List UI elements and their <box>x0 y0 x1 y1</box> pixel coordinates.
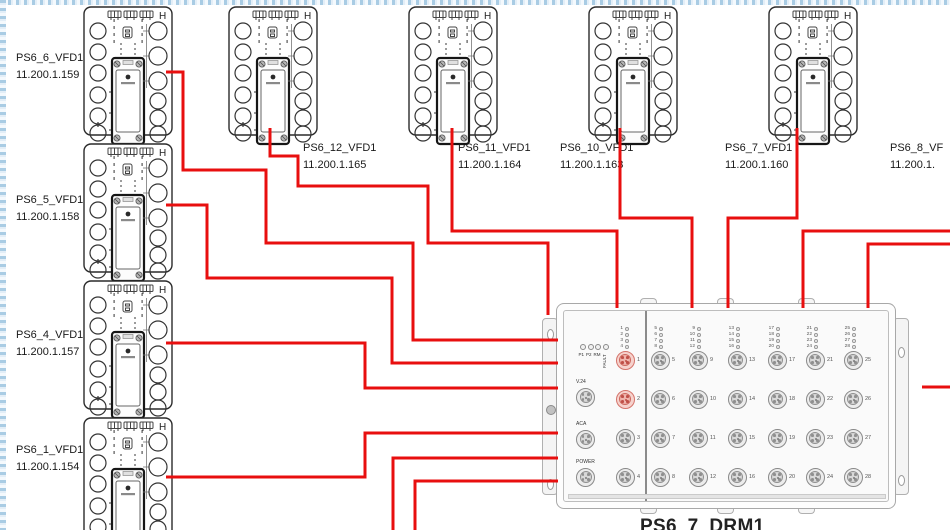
device-label-ps6-1: PS6_1_VFD111.200.1.154 <box>16 442 83 476</box>
led-indicator: 12 <box>689 344 705 350</box>
din-rail-icon: H <box>159 285 166 296</box>
led-indicator: 20 <box>768 344 784 350</box>
port-number: 18 <box>789 396 795 402</box>
m12-port-23[interactable] <box>806 429 825 448</box>
vfd-device-drawing[interactable]: H <box>83 417 173 530</box>
drive-faceplate <box>437 58 469 144</box>
drive-faceplate <box>112 195 144 281</box>
m12-port-11[interactable] <box>689 429 708 448</box>
m12-port-24[interactable] <box>806 468 825 487</box>
m12-port-5[interactable] <box>651 351 670 370</box>
m12-port-13[interactable] <box>728 351 747 370</box>
vfd-device-drawing[interactable]: H <box>768 6 858 148</box>
m12-port-16[interactable] <box>728 468 747 487</box>
m12-port-8[interactable] <box>651 468 670 487</box>
cable-bottom-1[interactable] <box>393 458 558 530</box>
drm-block[interactable]: P1P2RMFAULT V.24ACAPOWER 123412345678567… <box>540 298 920 530</box>
port-number: 4 <box>637 474 640 480</box>
port-number: 2 <box>637 396 640 402</box>
led-indicator: 16 <box>728 344 744 350</box>
m12-port-20[interactable] <box>768 468 787 487</box>
led-indicator-group: 25262728 <box>844 326 860 350</box>
m12-port-3[interactable] <box>616 429 635 448</box>
m12-port-22[interactable] <box>806 390 825 409</box>
cable-ps6-5[interactable] <box>166 205 558 363</box>
led-indicator-group: 5678 <box>651 326 667 350</box>
port-number: 9 <box>710 357 713 363</box>
diagram-canvas: H <box>0 0 950 530</box>
device-label-ps6-8: PS6_8_VF11.200.1. <box>890 140 943 174</box>
cable-right-1[interactable] <box>803 231 950 308</box>
cable-ps6-6[interactable] <box>166 72 558 340</box>
port-number: 1 <box>637 357 640 363</box>
led-indicator: 24 <box>806 344 822 350</box>
led-indicator-group: 17181920 <box>768 326 784 350</box>
status-led-label: P2 <box>586 352 592 357</box>
led-indicator-group: 9101112 <box>689 326 705 350</box>
port-number: 14 <box>749 396 755 402</box>
vfd-device-drawing[interactable]: H <box>83 6 173 148</box>
led-indicator-group: 21222324 <box>806 326 822 350</box>
m12-port-21[interactable] <box>806 351 825 370</box>
din-rail-icon: H <box>159 422 166 433</box>
page-edge-grid-left <box>0 0 6 530</box>
status-led-p1 <box>580 344 586 350</box>
led-indicator: 8 <box>651 344 667 350</box>
device-label-ps6-4: PS6_4_VFD111.200.1.157 <box>16 327 83 361</box>
m12-port-9[interactable] <box>689 351 708 370</box>
vfd-device-ps6-12[interactable]: H <box>228 6 318 148</box>
drm-block-label: PS6_7_DRM1 <box>640 516 764 530</box>
m12-port-1[interactable] <box>616 351 635 370</box>
port-number: 6 <box>672 396 675 402</box>
m12-port-19[interactable] <box>768 429 787 448</box>
connector-aca[interactable] <box>576 430 595 449</box>
din-rail-icon: H <box>844 11 851 22</box>
vfd-device-drawing[interactable]: H <box>228 6 318 148</box>
m12-port-7[interactable] <box>651 429 670 448</box>
vfd-device-ps6-1[interactable]: H <box>83 417 173 530</box>
led-indicator: 28 <box>844 344 860 350</box>
m12-port-2[interactable] <box>616 390 635 409</box>
port-number: 27 <box>865 435 871 441</box>
port-number: 22 <box>827 396 833 402</box>
port-number: 17 <box>789 357 795 363</box>
m12-port-27[interactable] <box>844 429 863 448</box>
drm-section-divider <box>645 311 647 501</box>
vfd-device-ps6-10[interactable]: H <box>588 6 678 148</box>
m12-port-17[interactable] <box>768 351 787 370</box>
vfd-device-drawing[interactable]: H <box>588 6 678 148</box>
drm-bottom-lip <box>568 494 886 499</box>
drive-faceplate <box>617 58 649 144</box>
m12-port-10[interactable] <box>689 390 708 409</box>
port-number: 8 <box>672 474 675 480</box>
vfd-device-ps6-4[interactable]: H <box>83 280 173 422</box>
led-indicator: 4 <box>617 344 633 350</box>
port-number: 7 <box>672 435 675 441</box>
port-number: 10 <box>710 396 716 402</box>
port-number: 3 <box>637 435 640 441</box>
cable-bottom-2[interactable] <box>415 481 558 530</box>
m12-port-26[interactable] <box>844 390 863 409</box>
port-number: 23 <box>827 435 833 441</box>
din-rail-icon: H <box>304 11 311 22</box>
status-led-p2 <box>588 344 594 350</box>
device-label-ps6-11: PS6_11_VFD111.200.1.164 <box>458 140 531 174</box>
connector-label-v24: V.24 <box>576 379 586 385</box>
device-label-ps6-5: PS6_5_VFD111.200.1.158 <box>16 192 83 226</box>
cable-ps6-4[interactable] <box>166 343 558 388</box>
vfd-device-ps6-5[interactable]: H <box>83 143 173 285</box>
device-label-ps6-10: PS6_10_VFD111.200.1.163 <box>560 140 633 174</box>
device-label-ps6-7: PS6_7_VFD111.200.1.160 <box>725 140 792 174</box>
vfd-device-ps6-6[interactable]: H <box>83 6 173 148</box>
status-led-label: RM <box>594 352 601 357</box>
vfd-device-ps6-7[interactable]: H <box>768 6 858 148</box>
connector-label-power: POWER <box>576 459 595 465</box>
drive-faceplate <box>112 58 144 144</box>
port-number: 24 <box>827 474 833 480</box>
port-number: 16 <box>749 474 755 480</box>
m12-port-28[interactable] <box>844 468 863 487</box>
port-number: 21 <box>827 357 833 363</box>
drive-faceplate <box>112 332 144 418</box>
vfd-device-ps6-11[interactable]: H <box>408 6 498 148</box>
din-rail-icon: H <box>159 11 166 22</box>
vfd-device-drawing[interactable]: H <box>408 6 498 148</box>
m12-port-18[interactable] <box>768 390 787 409</box>
m12-port-12[interactable] <box>689 468 708 487</box>
port-number: 11 <box>710 435 716 441</box>
port-number: 20 <box>789 474 795 480</box>
connector-v24[interactable] <box>576 388 595 407</box>
m12-port-6[interactable] <box>651 390 670 409</box>
port-number: 25 <box>865 357 871 363</box>
vfd-device-drawing[interactable]: H <box>83 280 173 422</box>
device-label-ps6-12: PS6_12_VFD111.200.1.165 <box>303 140 376 174</box>
m12-port-25[interactable] <box>844 351 863 370</box>
led-indicator-group: 13141516 <box>728 326 744 350</box>
port-number: 15 <box>749 435 755 441</box>
port-number: 19 <box>789 435 795 441</box>
status-led-rm <box>595 344 601 350</box>
drm-face <box>563 310 889 502</box>
page-edge-grid-top <box>0 0 950 5</box>
port-number: 13 <box>749 357 755 363</box>
din-rail-icon: H <box>159 148 166 159</box>
m12-port-15[interactable] <box>728 429 747 448</box>
cable-ps6-1[interactable] <box>166 433 558 477</box>
vfd-device-drawing[interactable]: H <box>83 143 173 285</box>
led-indicator-group: 1234 <box>617 326 633 350</box>
m12-port-4[interactable] <box>616 468 635 487</box>
port-number: 12 <box>710 474 716 480</box>
din-rail-icon: H <box>664 11 671 22</box>
din-rail-icon: H <box>484 11 491 22</box>
port-number: 28 <box>865 474 871 480</box>
m12-port-14[interactable] <box>728 390 747 409</box>
port-number: 26 <box>865 396 871 402</box>
status-led-label: FAULT <box>602 352 607 368</box>
port-number: 5 <box>672 357 675 363</box>
drive-faceplate <box>112 469 144 530</box>
connector-power[interactable] <box>576 468 595 487</box>
status-led-fault <box>603 344 609 350</box>
status-led-label: P1 <box>579 352 585 357</box>
drive-faceplate <box>797 58 829 144</box>
connector-label-aca: ACA <box>576 421 586 427</box>
device-label-ps6-6: PS6_6_VFD111.200.1.159 <box>16 50 83 84</box>
drive-faceplate <box>257 58 289 144</box>
